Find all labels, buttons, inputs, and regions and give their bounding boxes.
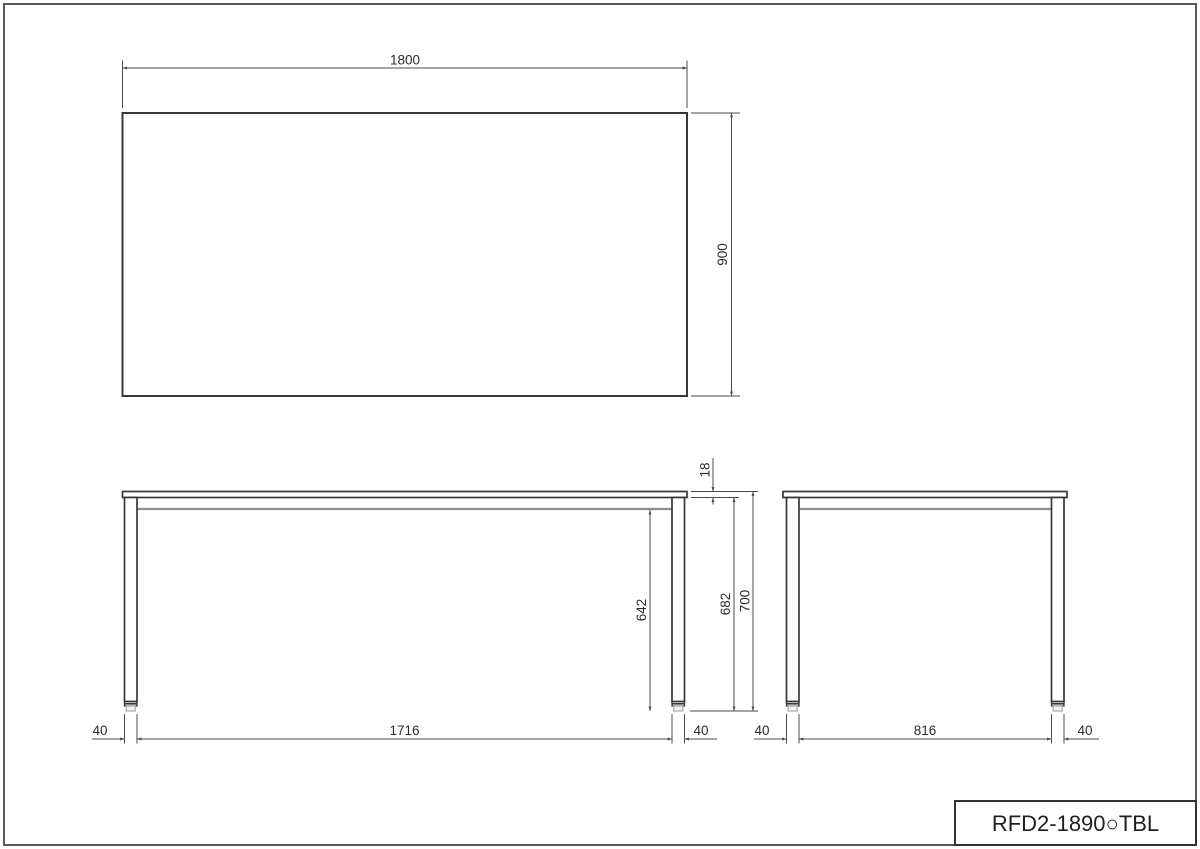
dim-label-top-depth: 900 [715,243,730,266]
drawing-sheet: 1800 900 18 [0,0,1200,849]
side-view [783,492,1067,712]
dim-label-top-thickness: 18 [698,462,713,477]
top-view [123,113,688,396]
dim-label-under-top: 682 [718,593,733,616]
model-code-label: RFD2-1890○TBL [992,811,1159,836]
side-view-dimensions: 40 816 40 [754,714,1099,744]
tabletop-edge-front [123,492,688,498]
dim-label-side-right-leg: 40 [1077,723,1092,738]
side-right-leg [1052,498,1065,712]
tabletop-outline-plan [123,113,688,396]
dim-label-side-left-leg: 40 [754,723,769,738]
side-left-leg [787,498,800,712]
dim-label-front-right-leg: 40 [693,723,708,738]
front-left-leg [125,498,138,712]
dim-label-front-left-leg: 40 [92,723,107,738]
front-view-dimensions: 18 682 700 642 40 1716 40 [92,458,758,744]
dim-label-front-span: 1716 [389,723,419,738]
dim-label-top-width: 1800 [390,53,420,68]
dim-label-side-span: 816 [914,723,937,738]
title-block: RFD2-1890○TBL [955,801,1196,845]
front-view [123,492,688,712]
dim-label-overall-height: 700 [738,590,753,613]
front-right-leg [672,498,685,712]
tabletop-edge-side [783,492,1067,498]
dim-label-apron-clearance: 642 [634,599,649,622]
